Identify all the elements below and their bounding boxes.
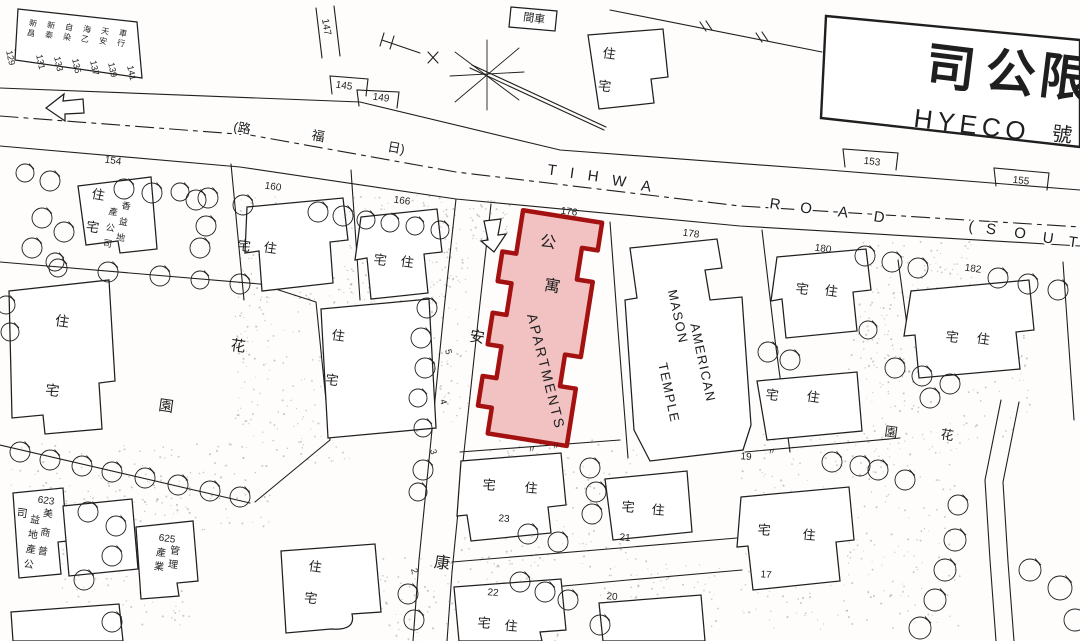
tree-icon: [186, 190, 206, 210]
tree-icon: [948, 495, 968, 515]
house-label: 宅: [477, 615, 491, 631]
tree-tick: [897, 252, 903, 258]
shop-number: 141: [125, 64, 138, 81]
tree-tick: [1063, 280, 1069, 286]
overhead-line: [472, 65, 606, 127]
house-label: 住: [802, 527, 816, 543]
road-name-letter: R: [769, 195, 782, 213]
plot-number: 166: [393, 195, 411, 208]
street-name-an: 安: [468, 328, 486, 347]
tree-tick: [883, 460, 889, 466]
shop-number: 133: [52, 55, 65, 72]
house-label: 住: [400, 254, 415, 271]
plot-number: 21: [619, 532, 631, 544]
tree-tick: [950, 558, 956, 565]
plot-number: 17: [760, 569, 772, 581]
tree-icon: [1019, 559, 1041, 581]
road-name-letter: O: [1013, 224, 1027, 242]
overhead-line: [470, 68, 604, 130]
road-name-letter: D: [873, 208, 886, 226]
house-label: 宅: [765, 387, 780, 404]
tree-tick: [597, 504, 603, 510]
shop-number: 129: [4, 49, 17, 66]
plot-number: 22: [487, 587, 499, 599]
house-label: 住: [651, 502, 665, 518]
arrow-left-icon: [46, 94, 84, 121]
hatch-mark: 〃: [551, 441, 562, 452]
house: [11, 604, 123, 641]
tree-icon: [920, 388, 940, 408]
house: [737, 487, 854, 590]
tree-tick: [1065, 575, 1072, 582]
house-label: 宅: [757, 522, 771, 538]
house-label: 住: [524, 480, 538, 496]
lane-edge: [452, 538, 737, 562]
tree-tick: [55, 450, 61, 456]
house-label: 住: [806, 389, 821, 406]
house-label: 住: [976, 331, 991, 348]
house: [9, 280, 115, 434]
house: [605, 471, 692, 540]
tree-tick: [563, 532, 569, 538]
tree-icon: [230, 274, 250, 294]
tree-tick: [245, 274, 251, 280]
tree-icon: [934, 559, 956, 581]
road-name-letter: S: [985, 220, 997, 238]
tree-icon: [190, 238, 210, 258]
tree-icon: [868, 460, 888, 480]
plot-number: 147: [319, 18, 333, 37]
map-line: [756, 33, 762, 42]
tree-tick: [157, 183, 163, 189]
map-line: [316, 8, 322, 58]
hyeco-sign-cn: 司: [922, 37, 978, 99]
house-label: 宅: [373, 252, 388, 269]
tree-tick: [795, 350, 801, 356]
road-name-letter: (: [967, 218, 974, 236]
street-edge-east: [447, 204, 491, 641]
apartments-label-cn: 公: [539, 233, 558, 253]
tree-icon: [102, 462, 122, 482]
hatch-mark: 〃: [767, 446, 777, 457]
tree-icon: [548, 532, 568, 552]
tree-icon: [909, 617, 931, 639]
tree-tick: [184, 183, 189, 188]
plot-number: 154: [104, 155, 122, 168]
plot-number: 23: [498, 513, 510, 525]
plot-number: 160: [264, 181, 282, 194]
tree-tick: [837, 452, 843, 458]
path-edge: [985, 400, 1001, 641]
hyeco-sign-cn: 公: [982, 42, 1038, 104]
tree-tick: [201, 190, 207, 196]
shop-number: 139: [106, 61, 119, 78]
road-name-letter: H: [587, 167, 600, 185]
tree-tick: [923, 258, 929, 264]
boundary: [1063, 262, 1074, 420]
boundary: [610, 222, 628, 458]
tree-icon: [22, 238, 42, 258]
garden-label: 花: [940, 427, 955, 444]
tree-tick: [150, 468, 156, 474]
house-label: 宅: [237, 238, 252, 255]
tree-tick: [62, 259, 67, 264]
tree-tick: [204, 271, 209, 276]
plot-number: 153: [863, 156, 881, 169]
plot-number: 155: [1012, 175, 1030, 188]
tree-icon: [850, 456, 870, 476]
tree-tick: [1035, 558, 1041, 565]
road-name-letter: O: [799, 199, 813, 217]
tree-tick: [900, 358, 906, 364]
tree-tick: [25, 442, 31, 448]
plot-number: 145: [335, 80, 353, 93]
tree-tick: [370, 211, 375, 216]
tree-tick: [69, 222, 75, 228]
map-line: [700, 22, 706, 31]
tree-icon: [40, 450, 60, 470]
house: [281, 544, 381, 633]
house: [771, 249, 871, 338]
plot-number: 182: [964, 263, 982, 276]
tree-tick: [1033, 274, 1039, 280]
tree-icon: [409, 483, 427, 501]
tree-tick: [348, 206, 354, 212]
road-name-letter: T: [1067, 233, 1078, 251]
road-name-cn: 日): [386, 139, 406, 157]
tree-tick: [940, 588, 946, 595]
house: [904, 280, 1034, 378]
tree-tick: [1003, 268, 1009, 274]
tree-tick: [211, 216, 217, 222]
arrow-down-icon: [481, 219, 506, 252]
tree-icon: [940, 374, 960, 394]
company-name: 司: [16, 507, 29, 520]
tree-icon: [586, 482, 606, 502]
tree-icon: [230, 487, 250, 507]
tree-icon: [758, 342, 778, 362]
road-name-cn: 福: [310, 127, 325, 144]
map-canvas: TIHWAROAD(SOUT(路福日)司公限HYECO號145147149153…: [0, 0, 1080, 641]
tree-icon: [908, 258, 928, 278]
house: [757, 372, 862, 440]
tree-icon: [54, 222, 74, 242]
tree-tick: [872, 321, 877, 326]
tree-tick: [117, 462, 123, 468]
road-name-letter: W: [611, 172, 628, 191]
road-name-letter: A: [640, 177, 652, 195]
tree-tick: [165, 266, 171, 272]
tree-icon: [196, 216, 216, 236]
mason-temple-building: [625, 239, 751, 461]
tree-icon: [1064, 609, 1080, 631]
tree-icon: [924, 589, 946, 611]
plot-number: 149: [372, 92, 390, 105]
tree-tick: [205, 238, 211, 244]
house-label: 宅: [621, 499, 635, 515]
tree-icon: [413, 460, 433, 480]
tree-icon: [944, 529, 966, 551]
hyeco-sign-cn: 限: [1036, 47, 1080, 109]
tree-tick: [870, 246, 876, 252]
tree-icon: [32, 208, 52, 228]
tree-icon: [882, 252, 902, 272]
tree-tick: [248, 195, 254, 201]
house-label: 宅: [482, 477, 496, 493]
tree-icon: [233, 195, 253, 215]
tree-tick: [47, 208, 53, 214]
tree-icon: [780, 350, 800, 370]
road-name-cn: (路: [232, 119, 252, 137]
shop-number: 137: [88, 59, 101, 76]
tree-tick: [525, 572, 531, 578]
house-label: 宅: [945, 329, 960, 346]
tree-icon: [398, 584, 418, 604]
hatch-mark: 〃: [527, 444, 538, 455]
house: [457, 453, 566, 541]
house: [321, 299, 436, 438]
garden-label: 園: [157, 397, 174, 416]
tree-tick: [595, 458, 601, 464]
house: [588, 29, 668, 109]
tree-tick: [113, 262, 119, 268]
tree-icon: [822, 452, 842, 472]
path-edge: [1003, 402, 1019, 641]
plot-number: 19: [740, 451, 752, 463]
apartments-label-cn: 寓: [543, 276, 562, 297]
tree-tick: [37, 238, 43, 244]
shop-number: 131: [34, 53, 47, 70]
tree-tick: [935, 388, 941, 394]
tree-icon: [135, 468, 155, 488]
house: [355, 209, 442, 299]
plot-number: 20: [606, 591, 618, 603]
map-root: TIHWAROAD(SOUT(路福日)司公限HYECO號145147149153…: [0, 0, 1080, 641]
pole-symbol: [380, 33, 384, 46]
tree-tick: [910, 470, 916, 476]
tree-icon: [49, 259, 67, 277]
tree-icon: [16, 164, 34, 182]
tree-tick: [960, 528, 966, 535]
house: [245, 198, 348, 291]
road-plot-number: 5: [443, 348, 454, 355]
tree-icon: [10, 442, 30, 462]
boundary: [255, 440, 330, 502]
house-label: 住: [824, 283, 839, 300]
road-name-letter: I: [569, 165, 575, 182]
garden-label: 花: [229, 337, 246, 356]
tree-tick: [419, 610, 425, 616]
tree-tick: [87, 456, 93, 462]
house-label: 住: [263, 240, 278, 257]
tree-tick: [963, 495, 969, 501]
road-name-letter: A: [837, 203, 849, 221]
boundary: [231, 164, 244, 300]
tree-tick: [213, 188, 219, 194]
tree-tick: [573, 590, 579, 596]
house: [63, 499, 138, 576]
pole-symbol: [382, 40, 420, 53]
road-name-letter: T: [546, 161, 557, 179]
tree-icon: [40, 171, 60, 191]
tree-icon: [1048, 576, 1072, 600]
street-name-kang: 康: [433, 553, 451, 573]
map-line: [334, 6, 340, 56]
map-line: [762, 32, 768, 41]
tree-tick: [215, 481, 221, 487]
tree-icon: [885, 358, 905, 378]
tree-tick: [29, 164, 34, 169]
hyeco-sign-cn: 號: [1051, 122, 1074, 147]
house-label: 住: [504, 618, 518, 634]
tree-tick: [865, 456, 871, 462]
garden-label: 園: [884, 424, 899, 441]
tree-tick: [55, 171, 61, 177]
plot-number: 178: [682, 228, 700, 241]
house-label: 宅: [795, 281, 810, 298]
tree-tick: [59, 253, 64, 258]
shop-number: 135: [70, 57, 83, 74]
tree-icon: [895, 470, 915, 490]
tree-icon: [582, 504, 602, 524]
tree-tick: [444, 221, 449, 226]
